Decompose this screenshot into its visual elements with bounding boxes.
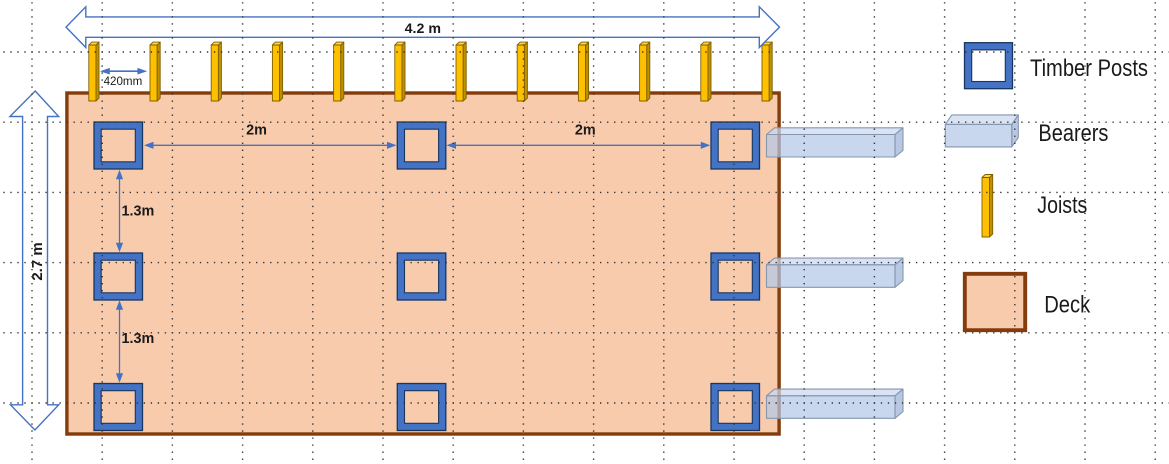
svg-text:4.2 m: 4.2 m — [405, 21, 441, 37]
svg-text:Bearers: Bearers — [1038, 120, 1108, 147]
svg-text:420mm: 420mm — [104, 75, 143, 88]
svg-text:1.3m: 1.3m — [122, 204, 155, 220]
svg-text:Timber Posts: Timber Posts — [1030, 55, 1148, 82]
svg-text:Deck: Deck — [1044, 292, 1091, 319]
svg-text:Joists: Joists — [1037, 192, 1087, 219]
svg-text:2m: 2m — [246, 123, 267, 139]
svg-text:1.3m: 1.3m — [122, 331, 155, 347]
svg-text:2m: 2m — [575, 123, 596, 139]
